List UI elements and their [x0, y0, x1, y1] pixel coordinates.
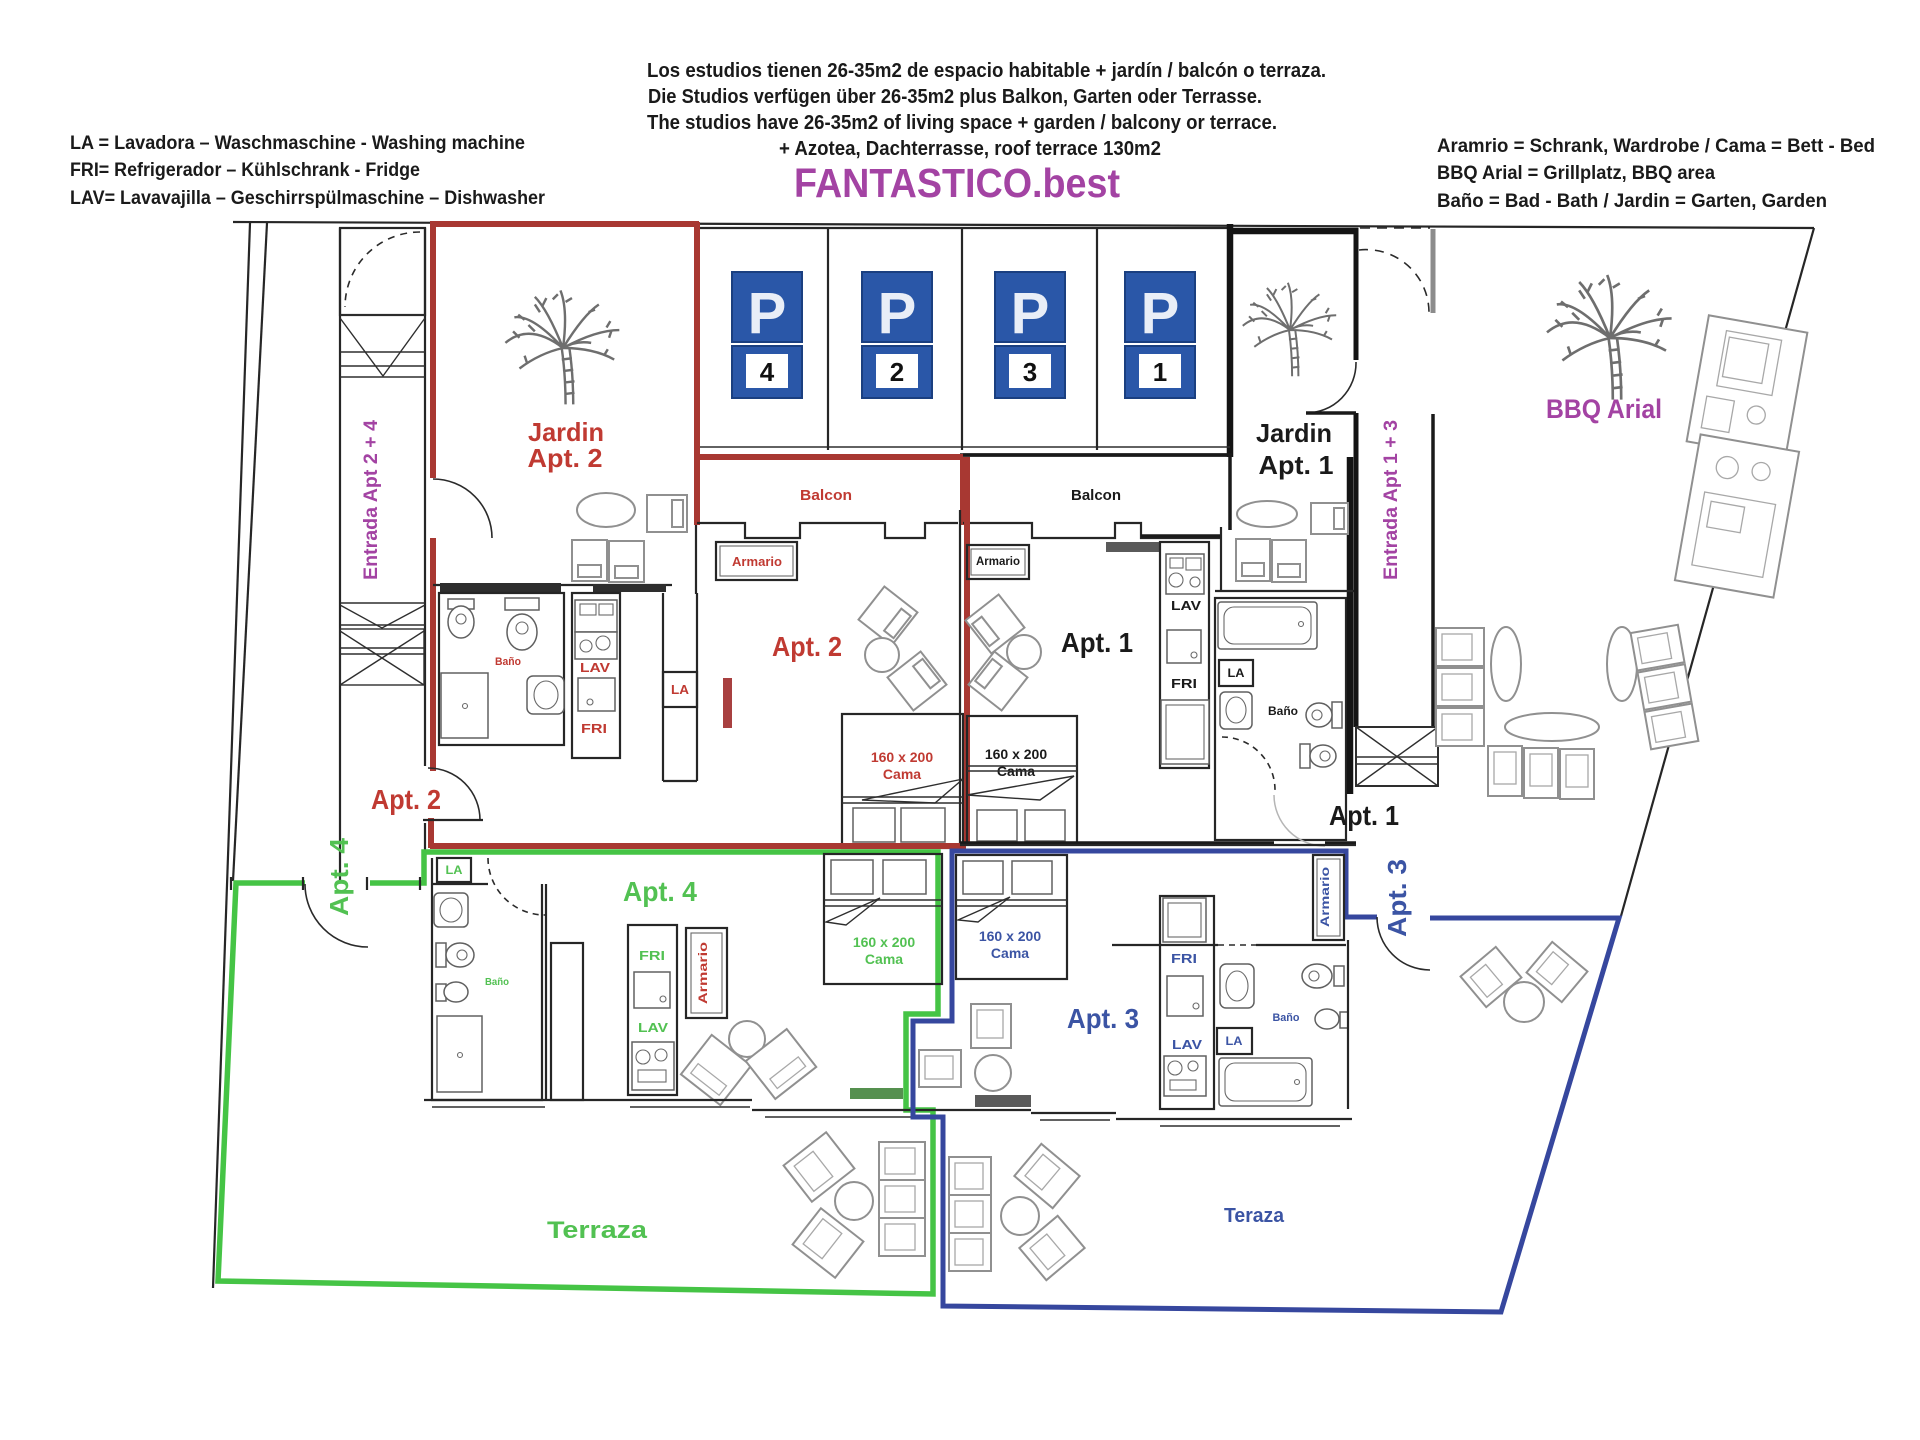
svg-text:Entrada Apt 2 + 4: Entrada Apt 2 + 4 [361, 420, 382, 580]
svg-text:BBQ Arial: BBQ Arial [1546, 394, 1662, 424]
svg-text:FRI: FRI [639, 948, 665, 963]
svg-text:Apt. 2: Apt. 2 [371, 784, 441, 815]
svg-text:FRI: FRI [1171, 951, 1197, 966]
svg-text:Apt. 3: Apt. 3 [1067, 1003, 1139, 1034]
svg-text:Entrada Apt 1 + 3: Entrada Apt 1 + 3 [1381, 420, 1402, 580]
svg-text:4: 4 [760, 357, 775, 387]
svg-text:FRI: FRI [581, 721, 607, 736]
svg-text:Armario: Armario [732, 554, 782, 569]
svg-text:LA: LA [1226, 1034, 1243, 1048]
svg-text:160 x 200: 160 x 200 [979, 928, 1041, 944]
svg-text:LA: LA [446, 863, 463, 877]
svg-text:LAV: LAV [638, 1020, 668, 1035]
svg-text:P: P [748, 281, 787, 346]
svg-text:FANTASTICO.best: FANTASTICO.best [794, 160, 1120, 206]
svg-text:FRI= Refrigerador – Kühlschran: FRI= Refrigerador – Kühlschrank - Fridge [70, 160, 420, 181]
svg-text:P: P [878, 281, 917, 346]
svg-text:LAV: LAV [1171, 598, 1201, 613]
svg-text:P: P [1011, 281, 1050, 346]
svg-text:Teraza: Teraza [1224, 1205, 1285, 1227]
svg-text:Die Studios verfügen über 26-3: Die Studios verfügen über 26-35m2 plus B… [648, 86, 1262, 108]
svg-text:Baño: Baño [485, 977, 509, 988]
svg-text:Cama: Cama [883, 766, 921, 782]
svg-text:Baño = Bad - Bath / Jardin =: Baño = Bad - Bath / Jardin = Garten, Gar… [1437, 191, 1827, 212]
svg-text:Terraza: Terraza [547, 1217, 648, 1244]
svg-text:LAV: LAV [580, 660, 610, 675]
svg-text:Jardin: Jardin [1256, 418, 1332, 448]
svg-text:Aramrio = Schrank, Wardrobe /: Aramrio = Schrank, Wardrobe / Cama = Bet… [1437, 136, 1875, 157]
svg-text:Baño: Baño [1273, 1012, 1300, 1024]
svg-text:Armario: Armario [1318, 867, 1332, 927]
svg-text:Baño: Baño [1268, 704, 1298, 718]
svg-text:LA: LA [1228, 666, 1245, 680]
svg-text:The studios have 26-35m2 of li: The studios have 26-35m2 of living space… [647, 112, 1277, 134]
svg-text:Apt. 4: Apt. 4 [623, 876, 697, 907]
svg-text:160 x 200: 160 x 200 [985, 746, 1047, 762]
svg-text:160 x 200: 160 x 200 [853, 934, 915, 950]
svg-text:Apt. 1: Apt. 1 [1259, 450, 1334, 480]
svg-text:LA: LA [671, 682, 690, 697]
svg-text:Balcon: Balcon [1071, 487, 1121, 504]
svg-text:160 x 200: 160 x 200 [871, 749, 933, 765]
svg-text:Los estudios tienen 26-35m2 de: Los estudios tienen 26-35m2 de espacio h… [647, 60, 1326, 82]
svg-text:BBQ Arial = Grillplatz, BBQ ar: BBQ Arial = Grillplatz, BBQ area [1437, 163, 1715, 184]
svg-text:3: 3 [1023, 357, 1037, 387]
svg-text:LAV: LAV [1172, 1037, 1202, 1052]
svg-text:Apt. 1: Apt. 1 [1329, 800, 1399, 831]
svg-text:FRI: FRI [1171, 676, 1197, 691]
svg-text:+ Azotea, Dachterrasse, roof t: + Azotea, Dachterrasse, roof terrace 130… [779, 138, 1161, 160]
svg-text:Apt. 2: Apt. 2 [528, 443, 603, 473]
svg-text:LAV= Lavavajilla – Geschirrspü: LAV= Lavavajilla – Geschirrspülmaschine … [70, 188, 546, 209]
svg-text:Cama: Cama [865, 951, 903, 967]
svg-text:Apt. 4: Apt. 4 [324, 837, 354, 916]
svg-text:Apt. 3: Apt. 3 [1382, 859, 1412, 937]
svg-text:Baño: Baño [495, 656, 521, 668]
svg-text:Armario: Armario [696, 942, 710, 1004]
svg-text:Armario: Armario [976, 554, 1020, 568]
svg-text:Apt. 2: Apt. 2 [772, 631, 842, 662]
svg-text:LA = Lavadora – Waschmaschine: LA = Lavadora – Waschmaschine - Washing … [70, 133, 525, 154]
svg-text:2: 2 [890, 357, 904, 387]
svg-text:1: 1 [1153, 357, 1167, 387]
svg-text:Apt. 1: Apt. 1 [1061, 627, 1133, 658]
svg-text:Balcon: Balcon [800, 487, 852, 504]
svg-text:P: P [1141, 281, 1180, 346]
svg-text:Cama: Cama [991, 945, 1029, 961]
